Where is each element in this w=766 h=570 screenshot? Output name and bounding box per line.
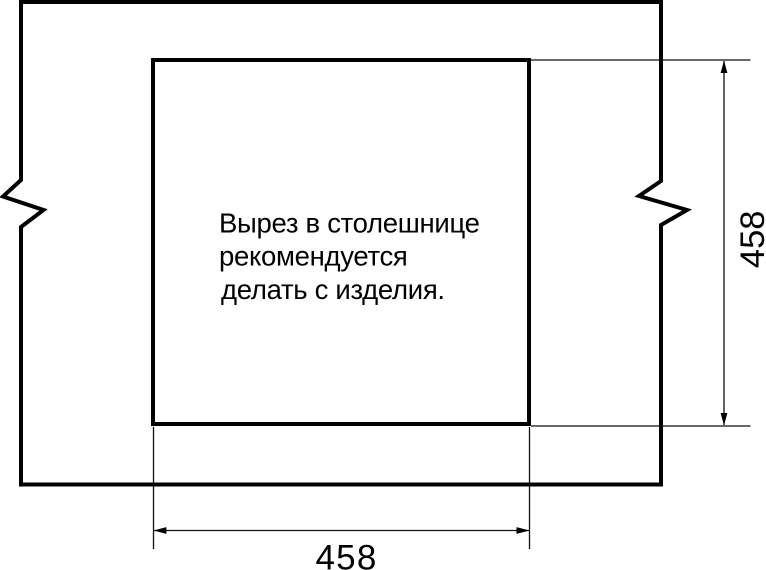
svg-text:рекомендуется: рекомендуется xyxy=(219,241,408,272)
svg-text:Вырез в столешнице: Вырез в столешнице xyxy=(219,208,480,239)
svg-text:делать с изделия.: делать с изделия. xyxy=(221,274,445,305)
svg-text:458: 458 xyxy=(734,211,766,269)
svg-text:458: 458 xyxy=(316,539,378,570)
